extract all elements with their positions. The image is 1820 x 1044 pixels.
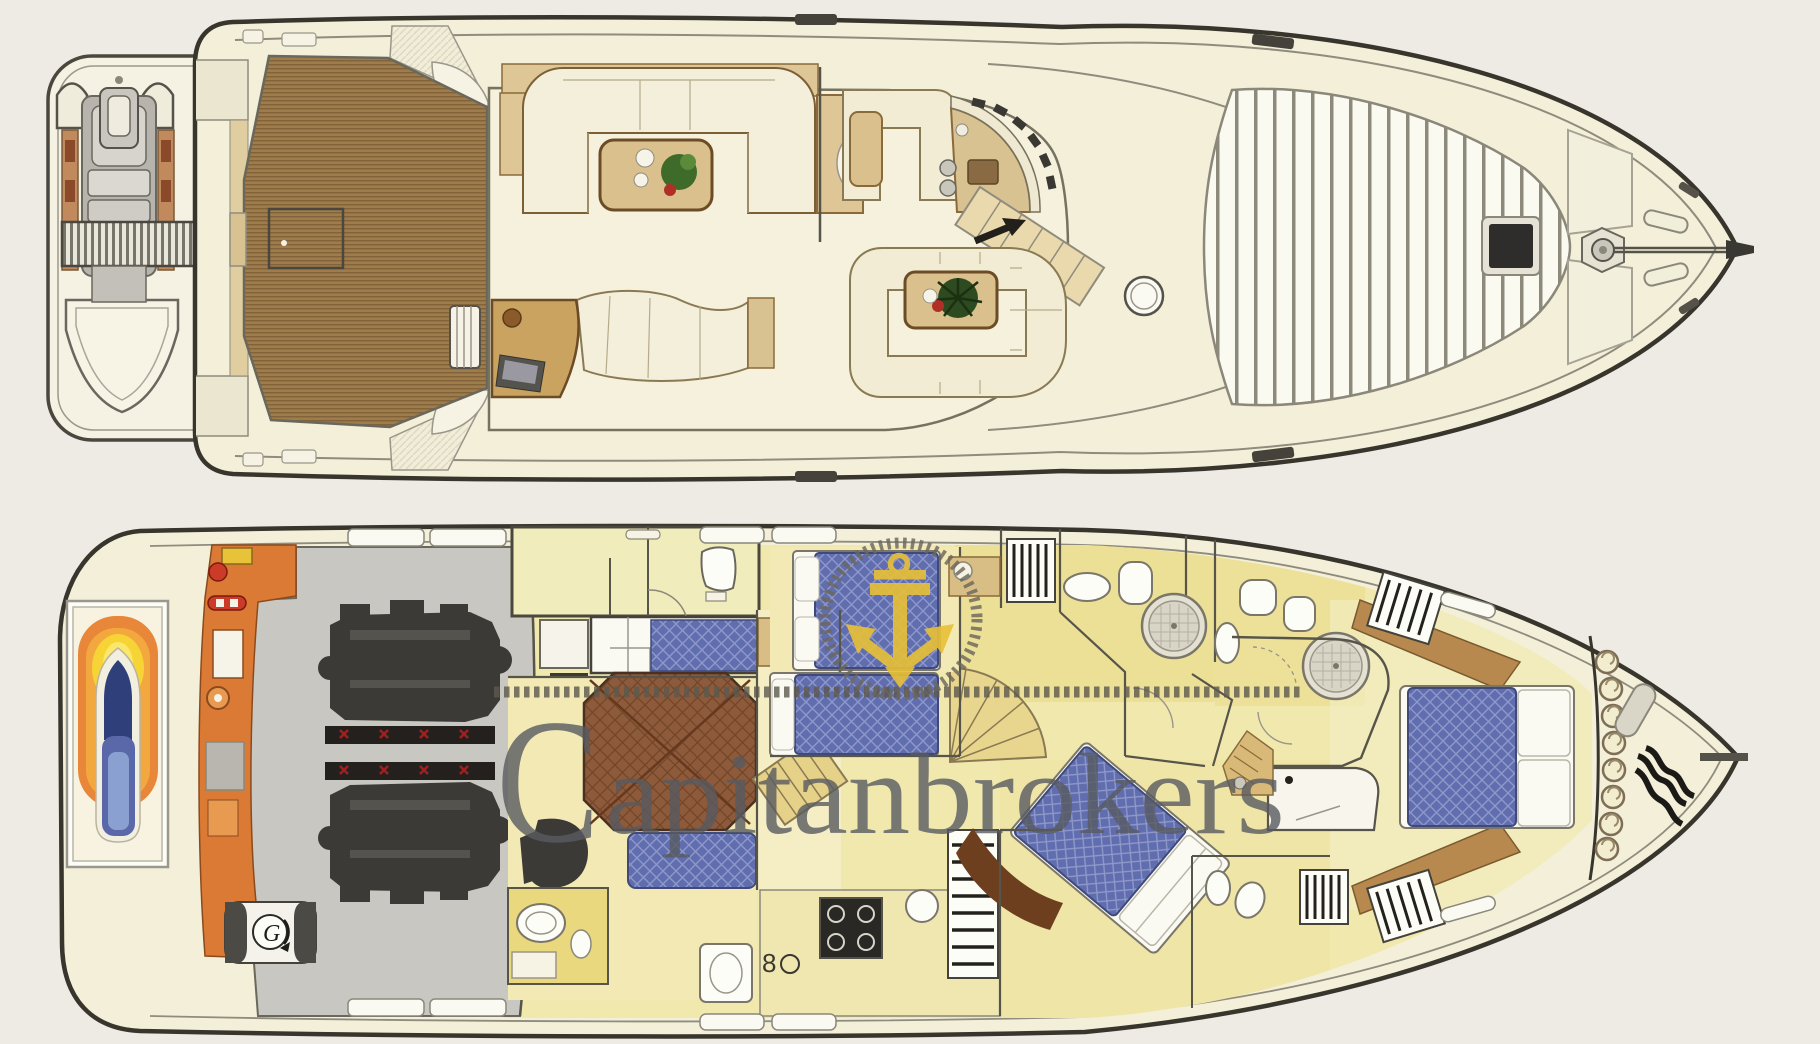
svg-text:G: G [263, 921, 280, 947]
svg-text:apitanbrokers: apitanbrokers [605, 731, 1285, 859]
svg-text:8: 8 [762, 948, 776, 978]
svg-text:C: C [496, 682, 600, 880]
